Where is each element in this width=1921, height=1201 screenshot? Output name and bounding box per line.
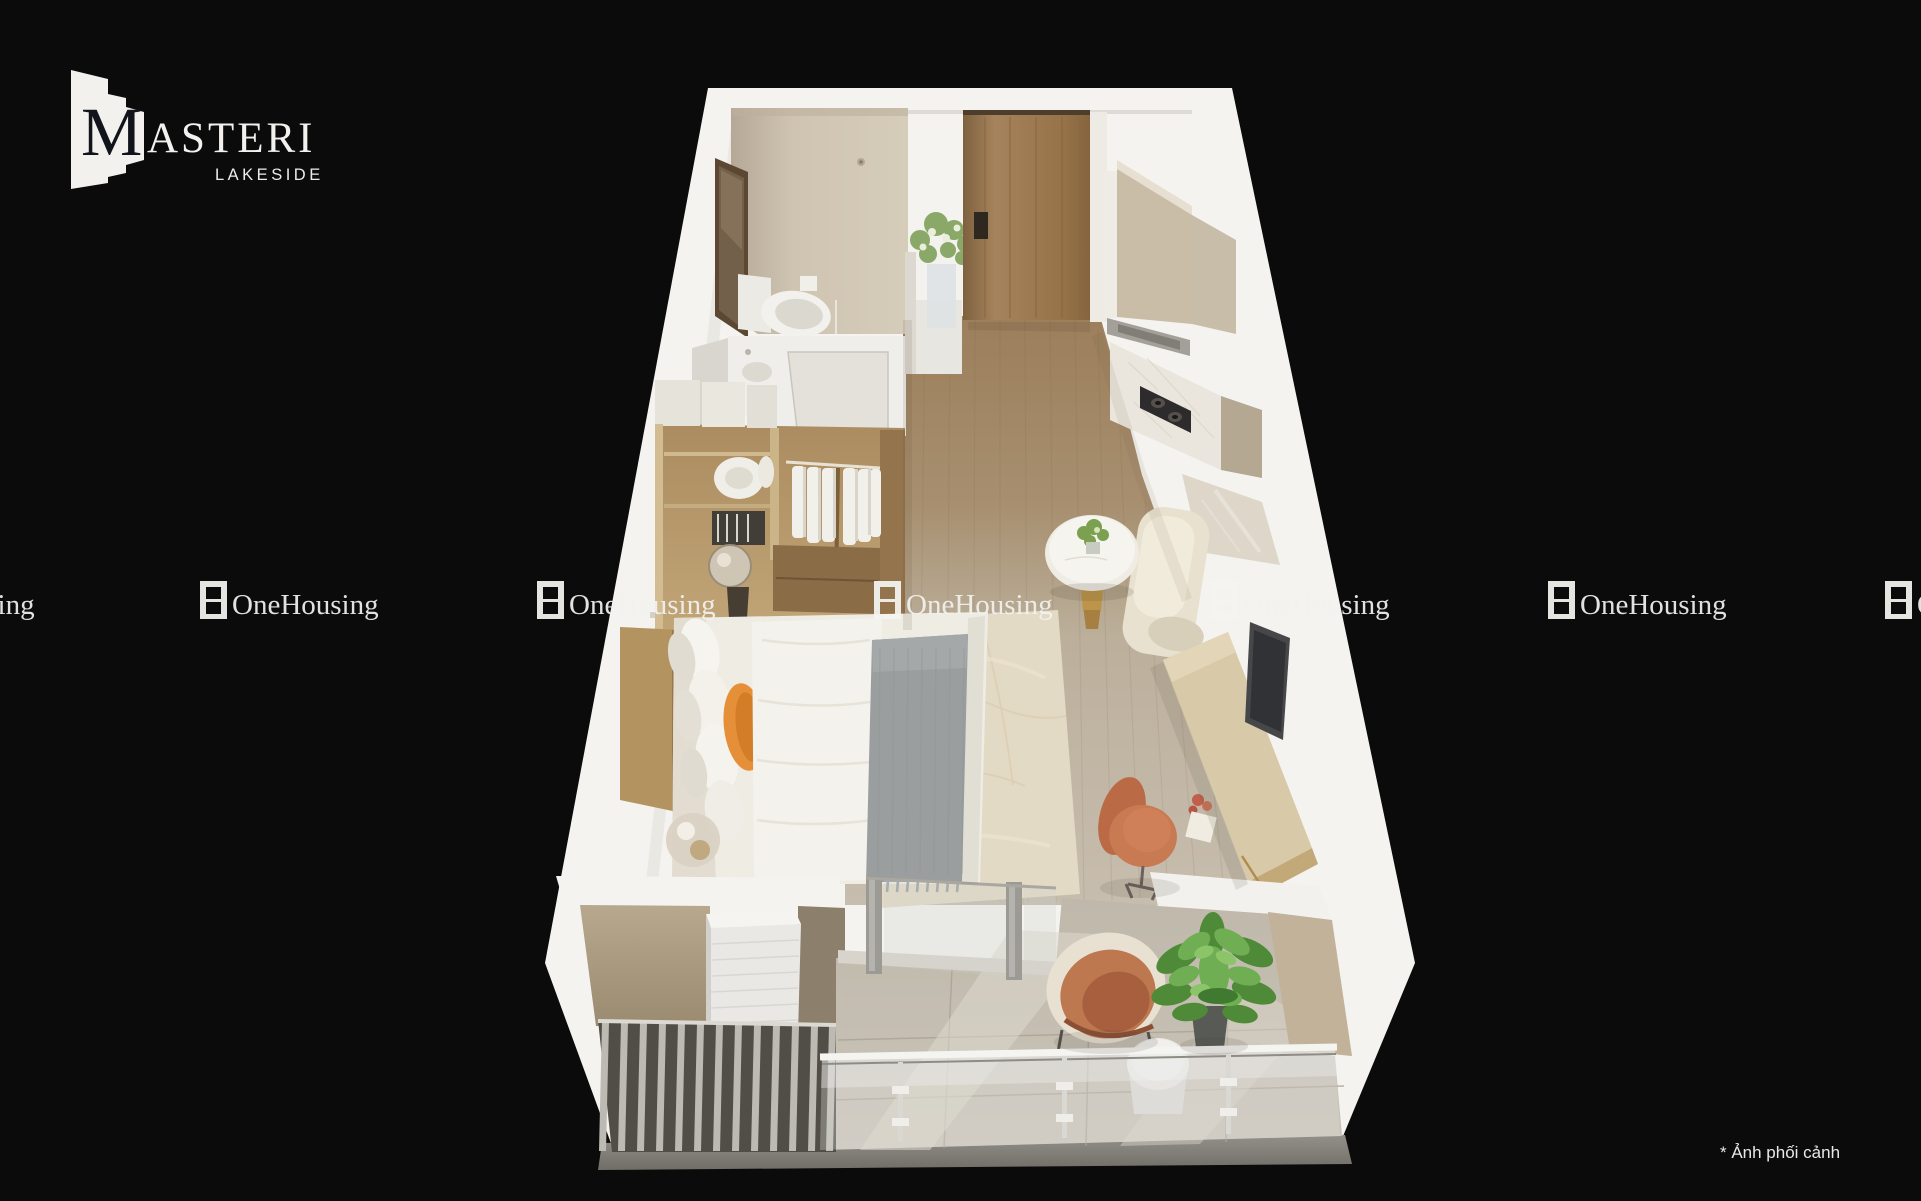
svg-text:* Ảnh phối cảnh: * Ảnh phối cảnh xyxy=(1720,1143,1840,1162)
svg-text:LAKESIDE: LAKESIDE xyxy=(215,166,324,184)
svg-text:M: M xyxy=(81,94,142,170)
svg-text:ASTERI: ASTERI xyxy=(147,115,316,162)
